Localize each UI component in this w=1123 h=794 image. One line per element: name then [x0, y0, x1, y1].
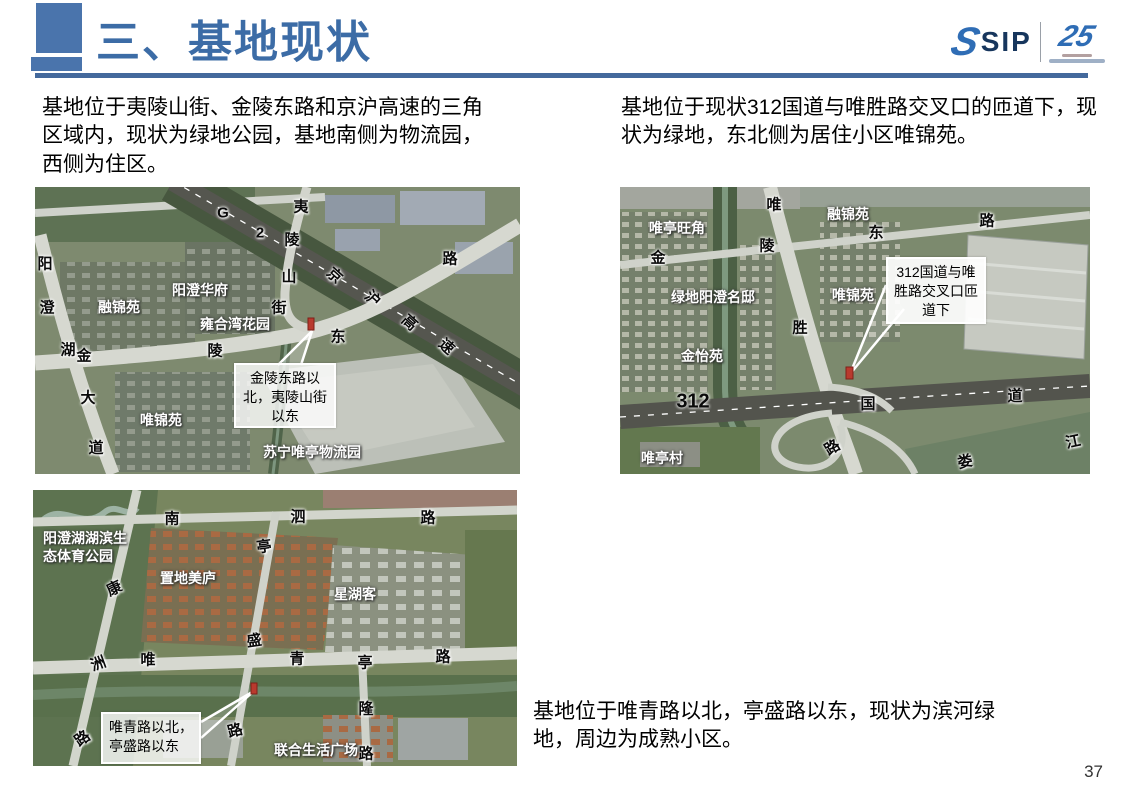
intro-paragraph-bottom: 基地位于唯青路以北，亭盛路以东，现状为滨河绿地，周边为成熟小区。: [533, 698, 1003, 755]
road-label-nansilu: 路: [420, 507, 435, 528]
anniversary-25-icon: 25: [1056, 22, 1098, 52]
place-label-zhidimeilu: 置地美庐: [160, 568, 216, 588]
road-label-yangchenghu-dadao: 道: [88, 437, 103, 458]
road-label-tingshenglu: 盛: [245, 629, 263, 652]
road-label-jinlingdonglu: 金: [650, 247, 665, 268]
road-label-yangchenghu-dadao: 湖: [60, 339, 75, 360]
road-label-tingshenglu: 亭: [255, 535, 273, 558]
place-label-lianhe-plaza: 联合生活广场: [274, 740, 358, 760]
road-label-jinlingdonglu: 金: [76, 345, 91, 366]
map-pin-icon: [846, 367, 853, 379]
place-label-weijinyuan: 唯锦苑: [832, 285, 874, 305]
satellite-map-jinling-yiling: G 2 夷 陵 山 街 路 京 沪 高 速 阳 澄 湖 金 陵 东 大 道 融锦…: [35, 187, 520, 474]
satellite-imagery: [35, 187, 520, 474]
logo-divider: [1040, 22, 1041, 62]
title-marker-square: [36, 3, 82, 53]
road-label-weiqinglu: 路: [435, 646, 450, 667]
intro-paragraph-right: 基地位于现状312国道与唯胜路交叉口的匝道下，现状为绿地，东北侧为居住小区唯锦苑…: [621, 94, 1099, 151]
header-rule: [35, 73, 1088, 78]
place-label-weitingwangjiao: 唯亭旺角: [649, 218, 705, 238]
sip-logo-text: SIP: [981, 26, 1032, 58]
road-label-yilingshanjie: 街: [271, 297, 286, 318]
road-label-tinglonglu: 路: [358, 743, 373, 764]
road-label-jinlingdonglu: 东: [868, 222, 883, 243]
page-number: 37: [1084, 762, 1103, 782]
road-label-jinlingdonglu: 东: [330, 326, 345, 347]
map-pin-icon: [251, 683, 257, 694]
intro-paragraph-left: 基地位于夷陵山街、金陵东路和京沪高速的三角区域内，现状为绿地公园，基地南侧为物流…: [42, 94, 494, 179]
callout-site3: 312国道与唯胜路交叉口匝道下: [886, 257, 986, 324]
road-label-yangchenghu-dadao: 澄: [39, 297, 54, 318]
sip-s-swoosh-icon: S: [947, 22, 984, 62]
slide-page: 三、基地现状 S SIP 25 基地位于夷陵山街、金陵东路和京沪高速的三角区域内…: [0, 0, 1123, 794]
road-label-yilingshanjie: 山: [281, 266, 296, 287]
road-label-yangchenghu-dadao: 大: [80, 387, 95, 408]
place-label-yangchenghu-park: 阳澄湖湖滨生态体育公园: [43, 530, 129, 565]
road-label-jinlingdonglu: 路: [979, 210, 994, 231]
road-label-g2: 2: [256, 225, 264, 242]
road-label-jinlingdonglu: 陵: [759, 235, 774, 256]
place-label-yonghewan: 雍合湾花园: [200, 314, 270, 334]
title-marker-bar: [31, 57, 82, 71]
callout-site2: 唯青路以北，亭盛路以东: [101, 712, 201, 764]
road-label-g312: 国: [860, 393, 875, 414]
road-label-jinlingdonglu: 路: [442, 248, 457, 269]
place-label-yangchenghuafu: 阳澄华府: [172, 280, 228, 300]
place-label-rongjinyuan: 融锦苑: [98, 297, 140, 317]
road-label-jinlingdonglu: 陵: [207, 340, 222, 361]
anniversary-caption-line2: [1049, 59, 1105, 63]
place-label-weitingcun: 唯亭村: [641, 448, 683, 468]
road-label-g312: 道: [1007, 385, 1022, 406]
road-label-g312: 312: [676, 391, 709, 414]
road-label-tinglonglu: 亭: [357, 652, 372, 673]
map-pin-icon: [308, 318, 314, 330]
anniversary-mark: 25: [1049, 22, 1105, 63]
anniversary-caption-line: [1062, 54, 1092, 57]
road-label-weishenglu: 唯: [766, 194, 781, 215]
place-label-weijinyuan: 唯锦苑: [140, 410, 182, 430]
road-label-nansilu: 南: [164, 508, 179, 529]
place-label-jinyiyuan: 金怡苑: [681, 346, 723, 366]
road-label-yilingshanjie: 夷: [293, 196, 308, 217]
sip-logo: S SIP 25: [952, 16, 1105, 68]
road-label-weiqinglu: 青: [289, 648, 304, 669]
place-label-lvdi-yangcheng: 绿地阳澄名邸: [671, 287, 755, 307]
road-label-weiqinglu: 唯: [140, 649, 155, 670]
place-label-suning-logistics: 苏宁唯亭物流园: [263, 442, 361, 462]
place-label-xinghuke: 星湖客: [334, 584, 376, 604]
road-label-yilingshanjie: 陵: [284, 229, 299, 250]
road-label-weishenglu: 胜: [792, 317, 807, 338]
callout-site1: 金陵东路以北，夷陵山街以东: [234, 363, 336, 428]
road-label-yangchenghu-dadao: 阳: [37, 253, 52, 274]
road-label-g2: G: [217, 205, 229, 222]
satellite-map-g312-weisheng: 唯 金 陵 东 路 胜 312 国 道 路 娄 江 融锦苑 唯亭旺角 绿地阳澄名…: [620, 187, 1090, 474]
satellite-map-weiqing-tingsheng: 南 泗 路 康 洲 路 亭 盛 路 唯 青 路 亭 隆 路 阳澄湖湖滨生态体育公…: [33, 490, 517, 766]
page-title: 三、基地现状: [96, 6, 372, 70]
place-label-rongjinyuan: 融锦苑: [827, 204, 869, 224]
road-label-tinglonglu: 隆: [358, 698, 373, 719]
road-label-nansilu: 泗: [290, 506, 305, 527]
